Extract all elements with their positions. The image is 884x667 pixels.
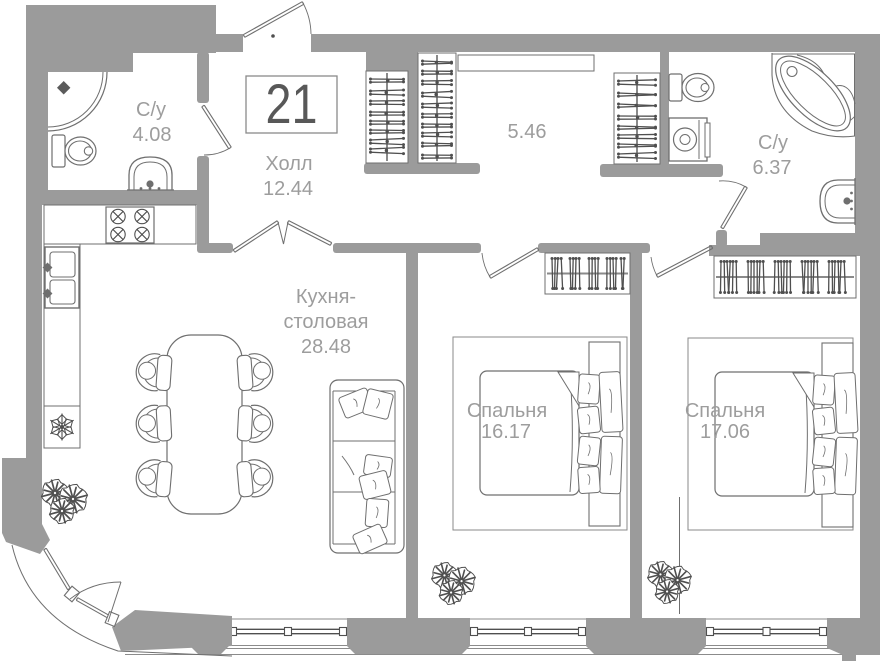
svg-text:С/у: С/у <box>758 132 788 154</box>
svg-text:4.08: 4.08 <box>133 124 172 146</box>
svg-text:21: 21 <box>266 72 318 135</box>
svg-text:6.37: 6.37 <box>753 157 792 179</box>
svg-text:12.44: 12.44 <box>263 178 313 200</box>
svg-text:столовая: столовая <box>284 311 369 333</box>
svg-text:28.48: 28.48 <box>301 336 351 358</box>
svg-text:5.46: 5.46 <box>508 121 547 143</box>
svg-text:С/у: С/у <box>136 99 166 121</box>
svg-text:16.17: 16.17 <box>481 421 531 443</box>
svg-text:17.06: 17.06 <box>700 421 750 443</box>
svg-text:Спальня: Спальня <box>467 400 547 422</box>
svg-text:Холл: Холл <box>265 153 312 175</box>
svg-text:Кухня-: Кухня- <box>296 286 356 308</box>
svg-text:Спальня: Спальня <box>685 400 765 422</box>
